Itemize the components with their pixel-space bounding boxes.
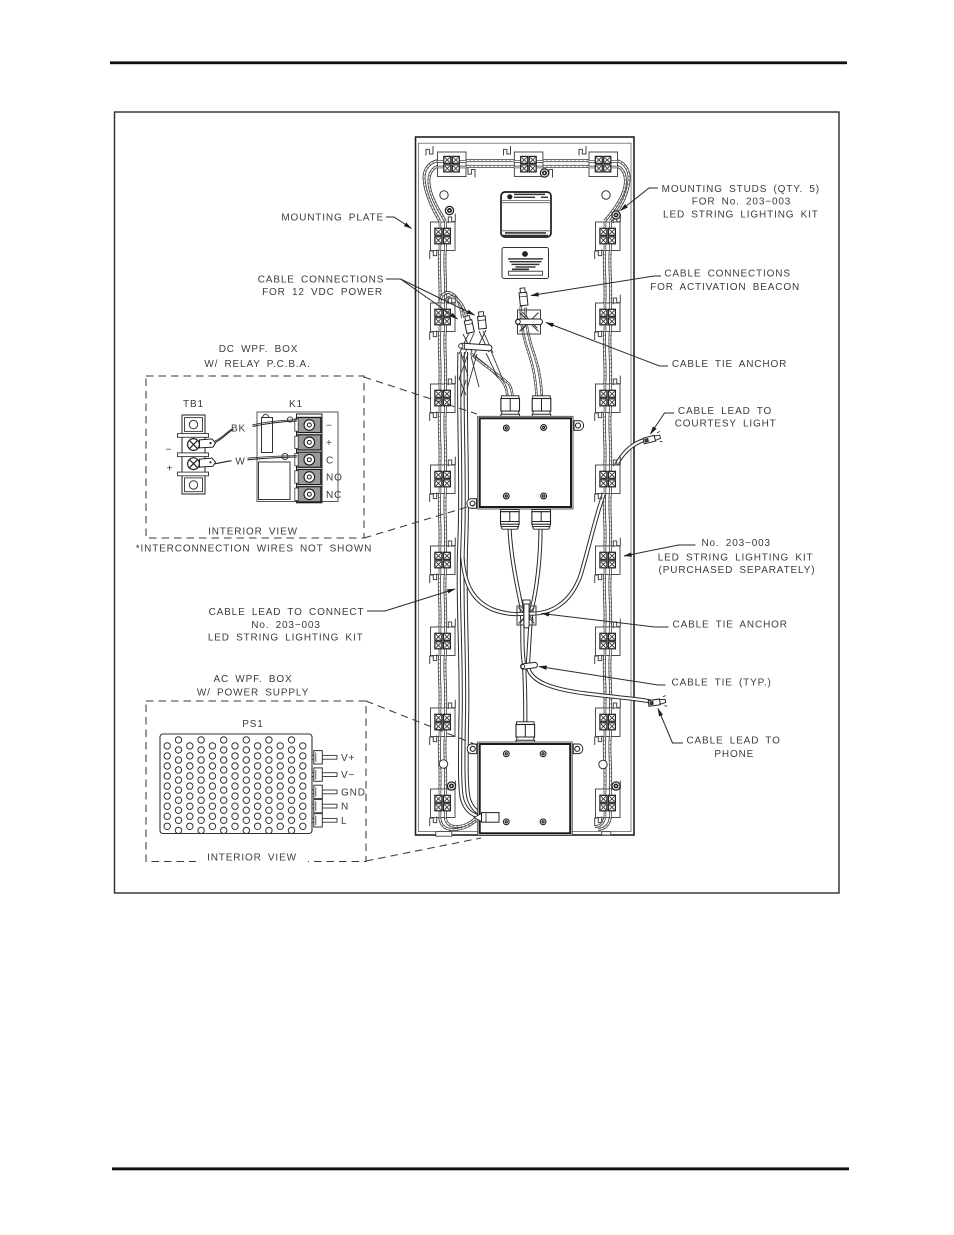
svg-text:(PURCHASED SEPARATELY): (PURCHASED SEPARATELY) — [659, 565, 816, 576]
svg-text:+: + — [167, 464, 174, 475]
svg-text:C: C — [326, 455, 334, 466]
svg-text:PHONE: PHONE — [714, 749, 754, 760]
svg-text:CABLE TIE ANCHOR: CABLE TIE ANCHOR — [673, 620, 788, 631]
svg-text:COURTESY LIGHT: COURTESY LIGHT — [675, 419, 777, 430]
svg-text:CABLE TIE (TYP.): CABLE TIE (TYP.) — [672, 678, 772, 689]
svg-text:MOUNTING STUDS (QTY. 5): MOUNTING STUDS (QTY. 5) — [662, 184, 820, 195]
svg-text:L: L — [341, 816, 347, 827]
svg-text:No. 203−003: No. 203−003 — [701, 538, 771, 549]
svg-text:PS1: PS1 — [242, 719, 263, 730]
svg-text:+: + — [326, 438, 333, 449]
svg-text:CABLE CONNECTIONS: CABLE CONNECTIONS — [664, 269, 791, 280]
svg-text:CABLE LEAD TO CONNECT: CABLE LEAD TO CONNECT — [209, 607, 365, 618]
svg-text:CABLE LEAD TO: CABLE LEAD TO — [678, 406, 772, 417]
svg-text:DC WPF. BOX: DC WPF. BOX — [219, 344, 299, 355]
svg-text:K1: K1 — [289, 399, 303, 410]
svg-text:CABLE LEAD TO: CABLE LEAD TO — [686, 736, 780, 747]
svg-text:−: − — [326, 421, 333, 432]
svg-text:*INTERCONNECTION WIRES NOT SHO: *INTERCONNECTION WIRES NOT SHOWN — [136, 544, 372, 555]
svg-text:W/ POWER SUPPLY: W/ POWER SUPPLY — [197, 687, 309, 698]
svg-text:GND: GND — [341, 788, 366, 799]
svg-text:−: − — [166, 445, 173, 456]
svg-text:W/ RELAY P.C.B.A.: W/ RELAY P.C.B.A. — [204, 359, 310, 370]
svg-text:No. 203−003: No. 203−003 — [251, 620, 321, 631]
svg-text:N: N — [341, 802, 349, 813]
svg-text:AC WPF. BOX: AC WPF. BOX — [213, 674, 292, 685]
svg-text:FOR ACTIVATION BEACON: FOR ACTIVATION BEACON — [650, 282, 800, 293]
svg-text:CABLE TIE ANCHOR: CABLE TIE ANCHOR — [672, 359, 787, 370]
svg-text:W: W — [235, 457, 245, 468]
svg-text:LED STRING LIGHTING KIT: LED STRING LIGHTING KIT — [663, 210, 819, 221]
svg-text:CABLE CONNECTIONS: CABLE CONNECTIONS — [258, 275, 385, 286]
svg-text:V+: V+ — [341, 753, 355, 764]
svg-text:INTERIOR VIEW: INTERIOR VIEW — [207, 853, 297, 864]
svg-text:MOUNTING PLATE: MOUNTING PLATE — [281, 213, 384, 224]
svg-text:BK: BK — [231, 424, 246, 435]
svg-text:FOR 12 VDC POWER: FOR 12 VDC POWER — [262, 287, 383, 298]
svg-text:INTERIOR VIEW: INTERIOR VIEW — [208, 527, 298, 538]
svg-text:NC: NC — [326, 490, 342, 501]
svg-text:TB1: TB1 — [183, 399, 204, 410]
svg-text:V−: V− — [341, 770, 355, 781]
svg-text:LED STRING LIGHTING KIT: LED STRING LIGHTING KIT — [208, 633, 364, 644]
svg-text:FOR No. 203−003: FOR No. 203−003 — [692, 196, 791, 207]
svg-text:LED STRING LIGHTING KIT: LED STRING LIGHTING KIT — [658, 552, 814, 563]
svg-text:NO: NO — [326, 473, 343, 484]
